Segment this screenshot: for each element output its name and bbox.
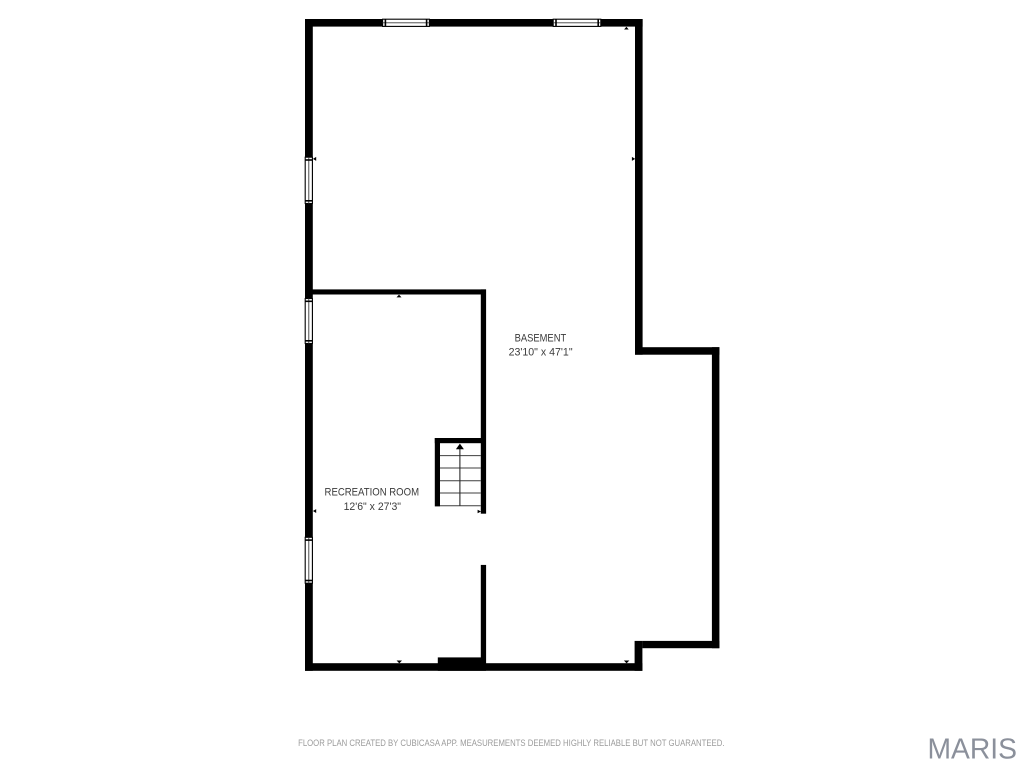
svg-text:FLOOR PLAN CREATED BY CUBICASA: FLOOR PLAN CREATED BY CUBICASA APP. MEAS… [298,738,724,749]
svg-text:RECREATION ROOM: RECREATION ROOM [325,487,420,499]
svg-text:23'10" x 47'1": 23'10" x 47'1" [509,347,573,359]
svg-text:12'6" x 27'3": 12'6" x 27'3" [344,501,402,513]
svg-text:MARIS: MARIS [928,733,1018,765]
svg-text:BASEMENT: BASEMENT [515,333,567,345]
